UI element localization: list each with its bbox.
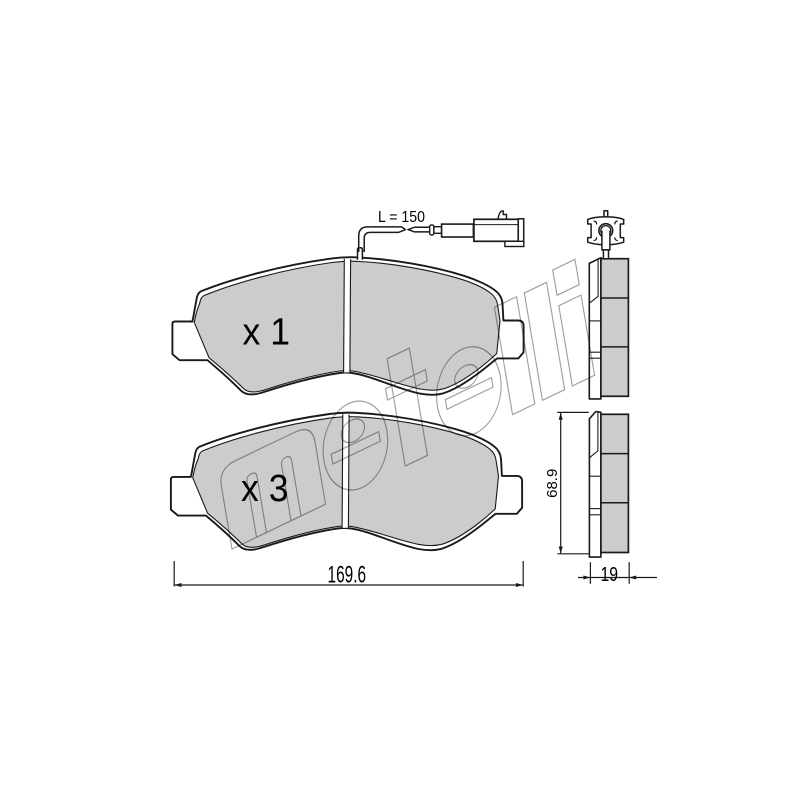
svg-text:169.6: 169.6 xyxy=(328,562,367,589)
svg-text:68.9: 68.9 xyxy=(544,469,561,498)
svg-text:L = 150: L = 150 xyxy=(378,209,425,226)
svg-text:x 1: x 1 xyxy=(243,312,291,354)
svg-text:19: 19 xyxy=(601,564,619,586)
